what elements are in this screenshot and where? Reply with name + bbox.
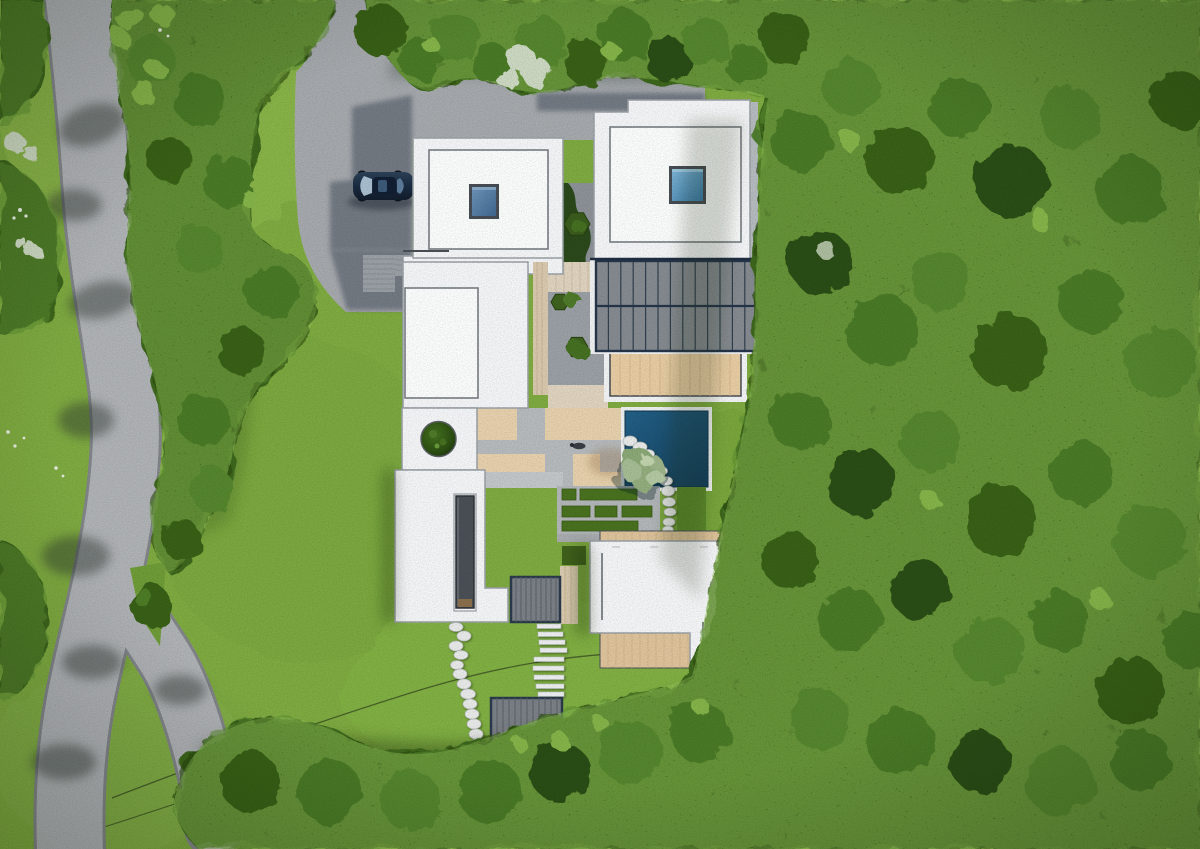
- aerial-render: [0, 0, 1200, 849]
- vignette-overlay: [0, 0, 1200, 849]
